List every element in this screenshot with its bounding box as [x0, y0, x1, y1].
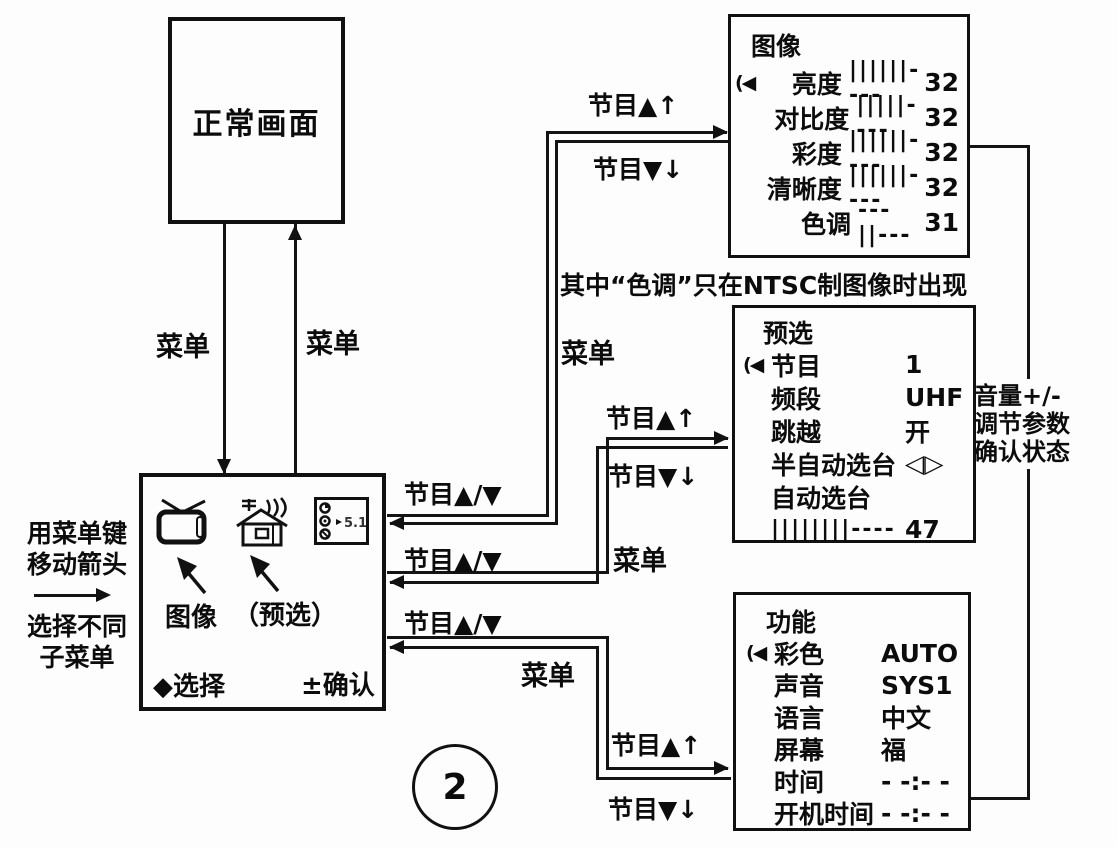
- menu-row-time: 时间 - -:- -: [746, 765, 962, 797]
- menu-key-label: 菜单: [521, 654, 575, 693]
- cursor-icon: (◀: [746, 642, 774, 664]
- menu-row-semiauto-tune: 半自动选台 ◁▷: [743, 447, 967, 480]
- menu-row-sound-system: 声音 SYS1: [746, 669, 962, 701]
- menu-item-label: 屏幕: [774, 731, 881, 767]
- program-down-label: 节目▼↓: [608, 457, 698, 493]
- program-updown-label: 节目▲/▼: [404, 604, 502, 640]
- main-menu-box: 5.1 图像 （预选） ◆选择 ±确认: [139, 473, 386, 711]
- connector-line: [596, 646, 599, 780]
- figure-number: 2: [442, 767, 467, 808]
- connector-line: [606, 437, 728, 440]
- menu-item-bar: ---||---: [851, 198, 917, 248]
- arrowhead-up-icon: [288, 225, 302, 240]
- connector-line: [390, 522, 558, 525]
- menu-row-auto-tune: 自动选台: [743, 480, 967, 513]
- menu-item-value: 32: [920, 68, 959, 97]
- picture-menu-box: 图像 (◀ 亮度 ||||||---- 32 对比度 |||||---- 32 …: [728, 14, 970, 258]
- menu-item-value: SYS1: [881, 671, 962, 700]
- instruction-arrow: [10, 580, 144, 611]
- menu-item-value: AUTO: [881, 639, 962, 668]
- cursor-icon: (◀: [735, 72, 761, 94]
- cursor-arrow-icon: [173, 555, 211, 597]
- connector-line: [555, 140, 558, 525]
- arrowhead-right-icon: [714, 431, 729, 445]
- menu-row-language: 语言 中文: [746, 701, 962, 733]
- menu-item-label: 频段: [771, 380, 905, 416]
- menu-item-label: 清晰度: [761, 170, 842, 206]
- menu-row-tint: 色调 ---||--- 31: [735, 205, 959, 240]
- menu-item-value: ◁▷: [905, 449, 967, 478]
- house-antenna-icon: [233, 497, 291, 547]
- menu-item-label: 语言: [774, 699, 881, 735]
- arrowhead-left-icon: [389, 516, 404, 530]
- menu-item-value: 1: [905, 350, 967, 379]
- instruction-line: 用菜单键: [10, 518, 144, 549]
- menu-key-label: 菜单: [613, 539, 667, 578]
- function-menu-box: 功能 (◀ 彩色 AUTO 声音 SYS1 语言 中文 屏幕 福 时间 - -:…: [733, 592, 971, 831]
- arrowhead-left-icon: [389, 640, 404, 654]
- menu-item-label: 亮度: [761, 65, 842, 101]
- menu-row-tune-progress: ||||||||---- 47: [743, 513, 967, 546]
- program-down-label: 节目▼↓: [608, 790, 698, 826]
- menu-key-label: 菜单: [306, 322, 360, 361]
- arrowhead-right-icon: [714, 761, 729, 775]
- connector-line: [1027, 145, 1030, 800]
- instruction-line: 选择不同: [10, 611, 144, 642]
- menu-item-label: 自动选台: [771, 479, 905, 515]
- preset-menu-title: 预选: [763, 314, 967, 348]
- menu-item-label: 跳越: [771, 413, 905, 449]
- menu-item-value: 中文: [881, 699, 962, 735]
- menu-item-value: 32: [920, 138, 959, 167]
- connector-line: [596, 446, 599, 584]
- volume-note-line: 调节参数: [974, 410, 1110, 438]
- menu-item-label: 色调: [763, 205, 851, 241]
- menu-item-value: 福: [881, 731, 962, 767]
- connector-line-menu-down: [223, 224, 226, 473]
- connector-line: [390, 581, 599, 584]
- ntsc-note: 其中“色调”只在NTSC制图像时出现: [560, 266, 967, 302]
- menu-item-value: UHF: [905, 383, 967, 412]
- connector-line: [596, 446, 728, 449]
- menu-key-label: 菜单: [561, 332, 615, 371]
- menu-item-value: 开: [905, 413, 967, 449]
- cursor-icon: (◀: [743, 354, 771, 376]
- instruction-line: 子菜单: [10, 642, 144, 673]
- instruction-line: 移动箭头: [10, 549, 144, 580]
- menu-item-label: 彩色: [774, 635, 881, 671]
- connector-line: [546, 131, 727, 134]
- menu-item-bar: ||||||||----: [771, 517, 905, 542]
- menu-item-label: 时间: [774, 763, 881, 799]
- menu-row-sharpness: 清晰度 ||||||---- 32: [735, 170, 959, 205]
- menu-row-brightness: (◀ 亮度 ||||||---- 32: [735, 65, 959, 100]
- normal-picture-box: 正常画面: [168, 17, 345, 224]
- connector-line: [390, 646, 599, 649]
- menu-item-value: - -:- -: [881, 767, 962, 796]
- program-up-label: 节目▲↑: [588, 86, 678, 122]
- control-panel-icon: 5.1: [314, 497, 369, 545]
- menu-row-screen: 屏幕 福: [746, 733, 962, 765]
- connector-line: [387, 514, 549, 517]
- confirm-hint: ±确认: [301, 665, 375, 702]
- volume-adjust-note: 音量+/- 调节参数 确认状态: [974, 379, 1110, 469]
- connector-line: [606, 636, 609, 770]
- left-instruction: 用菜单键 移动箭头 选择不同 子菜单: [10, 518, 144, 673]
- connector-line: [546, 131, 549, 517]
- menu-row-color-system: (◀ 彩色 AUTO: [746, 637, 962, 669]
- tv-menu-flow-diagram: 正常画面 菜单 菜单 节目▲↑ 节目▼↓ 菜单 节目▲/▼ 节目▲↑ 节目▼↓ …: [0, 0, 1117, 847]
- function-menu-title: 功能: [766, 603, 962, 637]
- picture-submenu-label: 图像: [165, 597, 217, 634]
- menu-item-value: 31: [917, 208, 959, 237]
- preset-menu-box: 预选 (◀ 节目 1 频段 UHF 跳越 开 半自动选台 ◁▷ 自动选台: [732, 305, 976, 543]
- cursor-arrow-icon: [246, 553, 284, 595]
- menu-row-band: 频段 UHF: [743, 381, 967, 414]
- menu-item-label: 声音: [774, 667, 881, 703]
- preset-submenu-label: （预选）: [233, 595, 337, 632]
- program-down-label: 节目▼↓: [593, 150, 683, 186]
- menu-item-label: 半自动选台: [771, 446, 905, 482]
- program-up-label: 节目▲↑: [611, 726, 701, 762]
- select-hint: ◆选择: [153, 666, 225, 703]
- volume-note-line: 确认状态: [974, 438, 1110, 466]
- connector-line: [555, 140, 728, 143]
- menu-row-poweron-time: 开机时间 - -:- -: [746, 797, 962, 829]
- connector-line: [967, 145, 1030, 148]
- menu-row-skip: 跳越 开: [743, 414, 967, 447]
- figure-number-circle: 2: [412, 744, 498, 830]
- connector-line: [596, 777, 731, 780]
- menu-item-label: 开机时间: [774, 795, 881, 831]
- arrowhead-down-icon: [217, 459, 231, 474]
- menu-item-value: 32: [918, 103, 959, 132]
- program-updown-label: 节目▲/▼: [404, 541, 502, 577]
- arrowhead-right-icon: [713, 125, 728, 139]
- menu-item-value: - -:- -: [881, 799, 962, 828]
- menu-item-value: 47: [905, 515, 967, 544]
- panel-icon-text: 5.1: [344, 516, 367, 531]
- menu-item-label: 节目: [771, 347, 905, 383]
- connector-line: [606, 767, 728, 770]
- normal-picture-label: 正常画面: [193, 99, 321, 143]
- menu-item-value: 32: [920, 173, 959, 202]
- arrowhead-left-icon: [389, 575, 404, 589]
- connector-line: [967, 797, 1030, 800]
- program-up-label: 节目▲↑: [606, 399, 696, 435]
- menu-row-program: (◀ 节目 1: [743, 348, 967, 381]
- volume-note-line: 音量+/-: [974, 382, 1110, 410]
- menu-item-label: 对比度: [763, 100, 850, 136]
- menu-key-label: 菜单: [156, 325, 210, 364]
- program-updown-label: 节目▲/▼: [404, 475, 502, 511]
- menu-item-label: 彩度: [761, 135, 842, 171]
- tv-icon: [155, 497, 213, 547]
- connector-line-menu-up: [294, 224, 297, 473]
